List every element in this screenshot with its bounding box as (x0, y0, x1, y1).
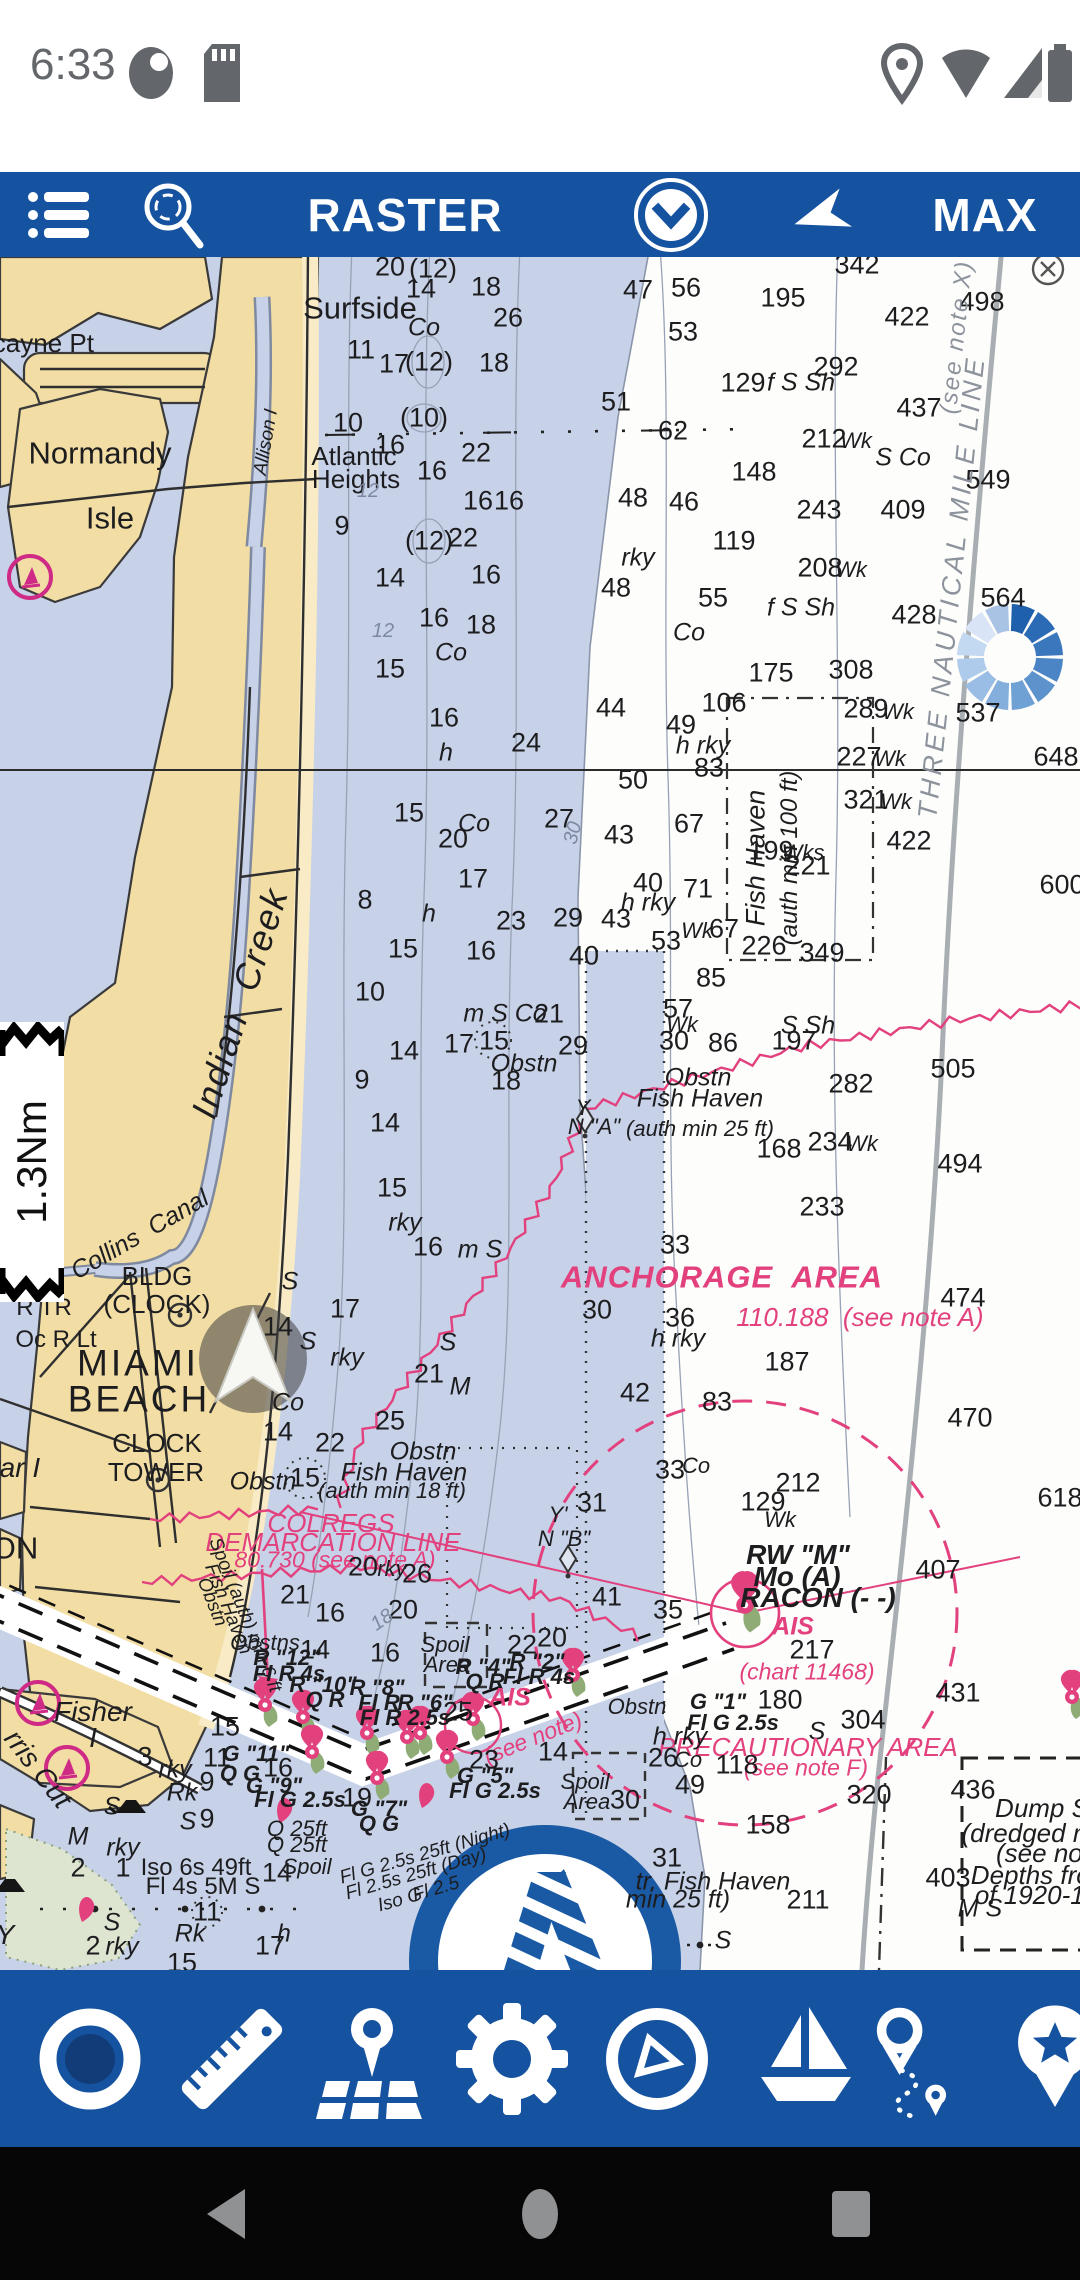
position-circle-icon (35, 2004, 145, 2114)
gear-icon (454, 2001, 570, 2117)
back-button[interactable] (205, 2189, 249, 2239)
navigation-arrow-icon (787, 179, 859, 251)
search-button[interactable] (130, 172, 215, 257)
chart-mode-button[interactable]: RASTER (280, 172, 530, 257)
ruler-icon (172, 1999, 292, 2119)
battery-icon (1044, 40, 1076, 106)
wifi-icon (938, 40, 994, 106)
boat-button[interactable] (745, 1970, 865, 2147)
scale-indicator: 1.3Nm (0, 1022, 64, 1302)
sd-card-icon (200, 40, 246, 106)
location-icon (880, 40, 924, 106)
recents-button[interactable] (830, 2189, 872, 2239)
signal-icon (998, 40, 1048, 106)
chart-canvas (0, 257, 1080, 1970)
android-nav-bar (0, 2147, 1080, 2280)
chart-mode-label: RASTER (307, 188, 502, 242)
zoom-level-button[interactable]: MAX (905, 172, 1065, 257)
position-cursor (199, 1305, 307, 1413)
bottom-toolbar (0, 1970, 1080, 2147)
star-pin-icon (995, 1989, 1080, 2129)
chart-select-button[interactable] (597, 1970, 717, 2147)
sailboat-icon (745, 2001, 865, 2117)
compass-icon (601, 2003, 713, 2115)
clock: 6:33 (30, 40, 116, 90)
map-pin-icon (312, 1997, 432, 2121)
chart-map[interactable]: 20(12)14183424756195422498Surfside26Cois… (0, 257, 1080, 1970)
position-button[interactable] (30, 1970, 150, 2147)
top-toolbar: RASTER MAX (0, 172, 1080, 257)
measure-button[interactable] (172, 1970, 292, 2147)
timer-button[interactable] (628, 172, 713, 257)
menu-button[interactable] (18, 172, 98, 257)
locate-button[interactable] (780, 172, 865, 257)
favorites-button[interactable] (995, 1970, 1080, 2147)
status-bar: 6:33 (0, 0, 1080, 172)
settings-button[interactable] (452, 1970, 572, 2147)
route-button[interactable] (856, 1970, 966, 2147)
zoom-level-label: MAX (932, 188, 1037, 242)
chevron-down-circle-icon (632, 176, 710, 254)
route-pin-icon (856, 1997, 966, 2121)
home-button[interactable] (517, 2187, 563, 2241)
phone-screen: 6:33 (0, 0, 1080, 2280)
search-icon (138, 179, 208, 251)
scale-label: 1.3Nm (8, 1100, 56, 1224)
data-saver-icon (126, 40, 180, 106)
menu-list-icon (27, 189, 89, 241)
marks-button[interactable] (312, 1970, 432, 2147)
